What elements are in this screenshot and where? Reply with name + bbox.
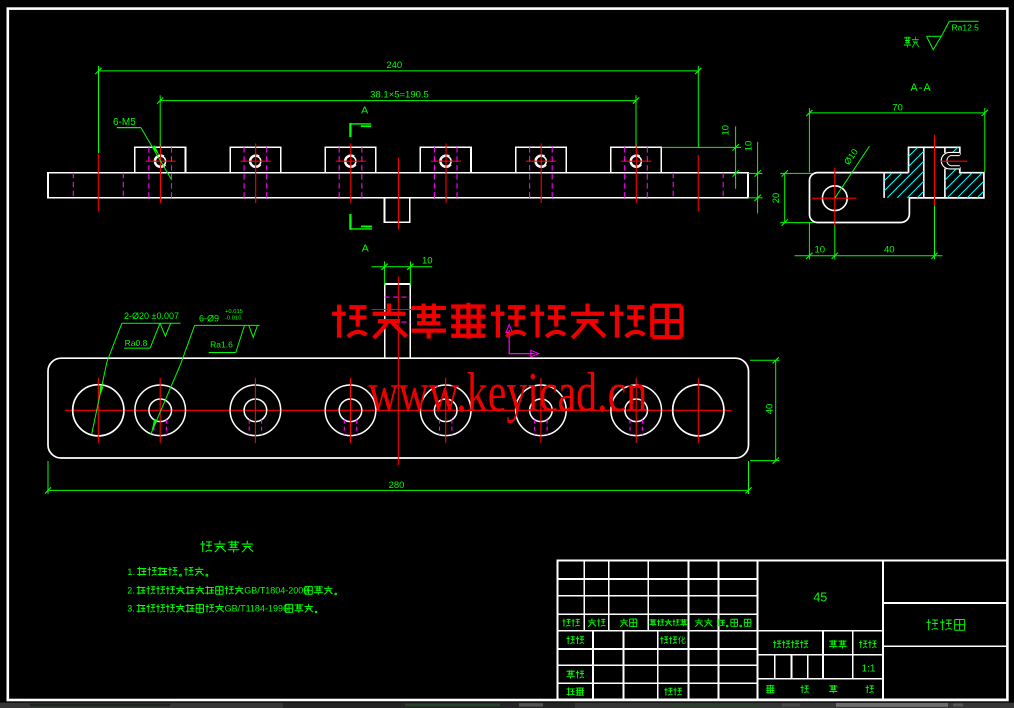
- svg-text:10: 10: [422, 255, 433, 266]
- svg-text:70: 70: [892, 102, 903, 113]
- svg-text:www.keyicad.cn: www.keyicad.cn: [368, 362, 647, 424]
- svg-text:-0.010: -0.010: [225, 315, 241, 321]
- svg-text:40: 40: [765, 404, 776, 415]
- svg-text:GB/T1184-1996: GB/T1184-1996: [225, 604, 288, 614]
- svg-text:10: 10: [815, 244, 826, 255]
- svg-text:10: 10: [721, 125, 732, 136]
- svg-text:化: 化: [678, 635, 686, 645]
- svg-text:2.: 2.: [127, 586, 135, 596]
- svg-text:Ra1.6: Ra1.6: [210, 340, 233, 350]
- svg-text:Ra0.8: Ra0.8: [125, 338, 148, 348]
- svg-text:240: 240: [386, 60, 402, 71]
- svg-text:20: 20: [771, 193, 782, 204]
- svg-text:GB/T1804-2000: GB/T1804-2000: [244, 586, 308, 596]
- svg-text:Ra12.5: Ra12.5: [952, 23, 980, 33]
- svg-text:1:1: 1:1: [862, 664, 876, 675]
- svg-text:38.1×5=190.5: 38.1×5=190.5: [370, 89, 429, 100]
- svg-text:+0.015: +0.015: [225, 309, 243, 315]
- svg-text:6-M5: 6-M5: [113, 117, 136, 128]
- svg-text:45: 45: [813, 591, 827, 605]
- svg-text:40: 40: [884, 244, 895, 255]
- svg-text:2-Ø20 ±0.007: 2-Ø20 ±0.007: [124, 311, 179, 321]
- svg-text:A: A: [361, 105, 368, 117]
- svg-text:A-A: A-A: [910, 82, 931, 94]
- svg-text:6-Ø9: 6-Ø9: [199, 314, 219, 324]
- svg-text:1.: 1.: [127, 567, 135, 578]
- svg-text:A: A: [362, 243, 369, 255]
- svg-text:280: 280: [389, 480, 405, 491]
- svg-text:3.: 3.: [127, 604, 135, 614]
- svg-text:10: 10: [744, 141, 755, 152]
